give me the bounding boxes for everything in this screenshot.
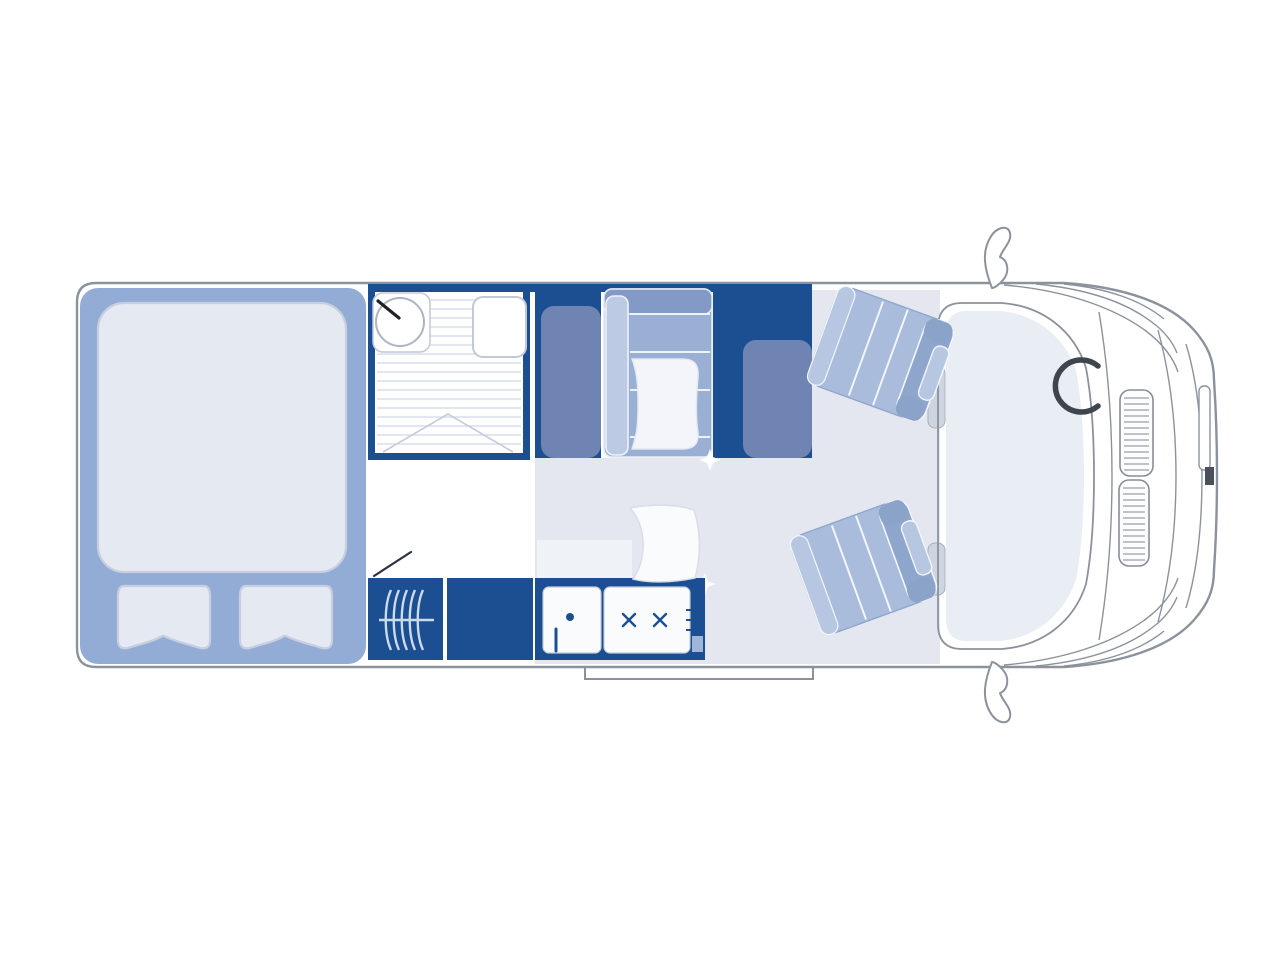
wardrobe-rear	[535, 288, 601, 458]
kitchen-sink	[543, 587, 601, 653]
kitchen-hob	[604, 587, 692, 653]
floor-walkway	[537, 540, 632, 578]
hob-panel	[604, 587, 690, 653]
rear-bed	[80, 288, 366, 664]
dashboard	[946, 311, 1084, 641]
front-sensor	[1205, 467, 1214, 485]
entry-step	[585, 667, 813, 679]
kitchen-heater	[368, 578, 443, 660]
bench-armrest	[606, 296, 628, 455]
bumper-trim	[1199, 386, 1210, 470]
washroom	[368, 286, 530, 460]
bed-duvet	[98, 303, 346, 572]
floorplan-svg	[0, 0, 1280, 960]
bench-cushion	[632, 359, 698, 449]
toilet	[473, 297, 526, 357]
mirror-icon	[985, 228, 1010, 288]
sink-drain-icon	[566, 613, 574, 621]
grille-vent-lower	[1119, 480, 1149, 566]
kitchen-unit	[535, 578, 705, 660]
kitchen-counter	[447, 578, 533, 660]
wardrobe-front	[713, 289, 812, 458]
wardrobe-front-backrest	[743, 340, 812, 458]
wardrobe-rear-front	[541, 306, 601, 458]
grille-vent-upper	[1120, 390, 1153, 476]
kitchen-end-trim	[692, 636, 703, 652]
floorplan-canvas	[0, 0, 1280, 960]
dinette-bench	[604, 289, 712, 457]
